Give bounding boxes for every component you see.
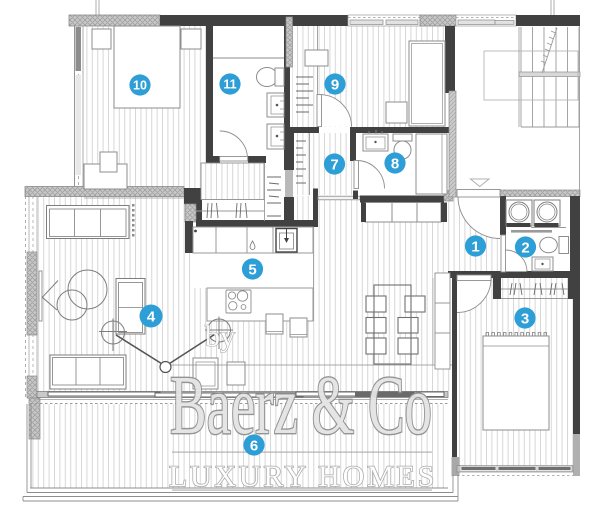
svg-text:11: 11	[223, 78, 236, 92]
svg-text:by: by	[205, 320, 235, 353]
svg-text:5: 5	[248, 261, 256, 278]
svg-text:6: 6	[250, 437, 258, 454]
svg-text:LUXURY HOMES: LUXURY HOMES	[169, 460, 437, 493]
svg-text:1: 1	[471, 238, 479, 255]
svg-text:9: 9	[331, 76, 339, 93]
svg-text:3: 3	[521, 310, 529, 327]
svg-text:Baerz & Co: Baerz & Co	[170, 360, 432, 452]
svg-text:2: 2	[521, 239, 529, 256]
svg-text:8: 8	[391, 155, 399, 172]
svg-text:10: 10	[133, 79, 147, 93]
svg-text:4: 4	[147, 308, 156, 325]
svg-text:7: 7	[330, 156, 338, 173]
